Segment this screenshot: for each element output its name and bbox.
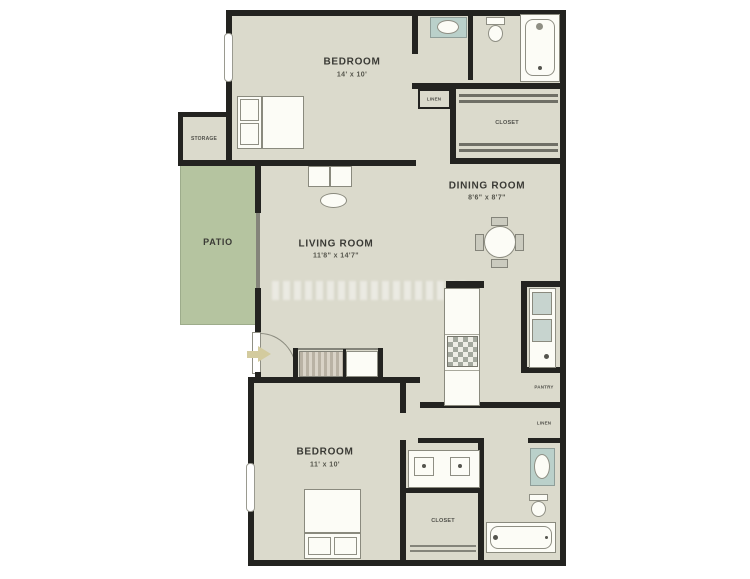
toilet-tank [486, 17, 505, 25]
wall [343, 349, 346, 380]
watermark [272, 281, 466, 300]
label-closet-top: CLOSET [495, 120, 519, 126]
room-dims-dining: 8'6" x 8'7" [468, 195, 506, 202]
sliding-door [256, 213, 260, 288]
wall [178, 112, 231, 117]
sink [534, 454, 550, 479]
counter-line [445, 370, 479, 371]
wall [378, 348, 383, 380]
wall [248, 377, 420, 383]
label-pantry: PANTRY [534, 385, 553, 390]
room-dims-bedroom-top: 14' x 10' [337, 72, 367, 79]
wall [293, 348, 298, 380]
wall [400, 440, 406, 565]
wall [418, 438, 484, 443]
label-storage: STORAGE [191, 136, 217, 142]
toilet [531, 501, 546, 517]
pillow [308, 537, 331, 555]
sink-drain [422, 464, 426, 468]
sink-drain [544, 354, 549, 359]
room-dims-living: 11'8" x 14'7" [313, 253, 359, 260]
dining-chair [515, 234, 524, 251]
closet-shelf [346, 351, 378, 377]
label-linen-top: LINEN [427, 97, 442, 102]
dining-chair [475, 234, 484, 251]
bathtub-faucet [493, 535, 498, 540]
wall [560, 10, 566, 566]
room-label-patio: PATIO [203, 237, 233, 247]
entry-arrow-icon [247, 351, 258, 358]
bathtub-inner [490, 526, 552, 549]
dining-table [484, 226, 516, 258]
wall [255, 288, 261, 332]
closet-track [295, 348, 383, 350]
wall [226, 10, 566, 16]
window [224, 33, 233, 82]
room-dims-bedroom-bottom: 11' x 10' [310, 462, 340, 469]
sink [437, 20, 459, 34]
wall [178, 160, 416, 166]
room-label-living: LIVING ROOM [299, 239, 374, 250]
wall [450, 89, 456, 162]
wall [446, 281, 484, 288]
room-label-bedroom-top: BEDROOM [323, 57, 380, 68]
dryer [532, 319, 552, 342]
coffee-table [320, 193, 347, 208]
pillow [334, 537, 357, 555]
wall [521, 281, 527, 372]
closet-clothes [299, 351, 344, 377]
washer [532, 292, 552, 315]
wall [528, 438, 566, 443]
bathtub-drain [545, 536, 548, 539]
closet-rod [459, 94, 558, 97]
pillow [240, 99, 259, 121]
closet-door-line [410, 545, 476, 547]
entry-arrow-icon [258, 346, 271, 362]
label-linen-right: LINEN [537, 421, 552, 426]
wall [420, 402, 566, 408]
wall [400, 382, 406, 413]
pillow [240, 123, 259, 145]
wall [527, 281, 566, 287]
wall [178, 112, 183, 166]
floorplan: BEDROOM 14' x 10' DINING ROOM 8'6" x 8'7… [0, 0, 750, 579]
toilet [488, 25, 503, 42]
toilet-tank [529, 494, 548, 501]
wall [468, 12, 473, 80]
closet-shelf-line [459, 100, 558, 103]
bed-line [305, 532, 360, 534]
dining-chair [491, 217, 508, 226]
label-closet-bottom: CLOSET [431, 518, 455, 524]
stove [447, 336, 478, 367]
sofa-line [329, 167, 331, 186]
window [246, 463, 255, 512]
wall [248, 560, 566, 566]
wall [450, 158, 566, 164]
bed-line [261, 97, 263, 148]
closet-shelf-line [459, 149, 558, 152]
bathtub-drain [538, 66, 542, 70]
room-label-dining: DINING ROOM [449, 181, 526, 192]
wall [412, 12, 418, 54]
dining-chair [491, 259, 508, 268]
sink-drain [458, 464, 462, 468]
counter-line [445, 334, 479, 335]
bathtub-faucet [536, 23, 543, 30]
room-label-bedroom-bottom: BEDROOM [296, 447, 353, 458]
closet-rod [459, 143, 558, 146]
closet-door-line [410, 550, 476, 552]
wall [255, 166, 261, 213]
wall [406, 488, 484, 493]
